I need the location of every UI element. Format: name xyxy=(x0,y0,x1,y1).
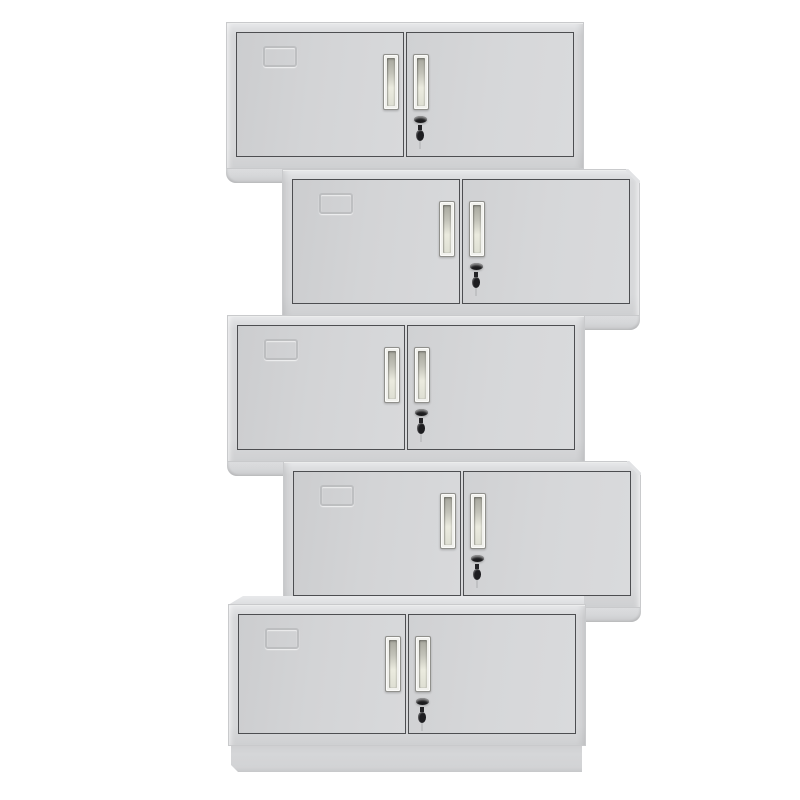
handle-recess xyxy=(419,640,427,688)
door-lock xyxy=(413,116,427,150)
right-door-handle xyxy=(414,347,430,403)
key-bow xyxy=(416,130,424,141)
door-lock xyxy=(415,698,429,732)
handle-recess xyxy=(473,205,481,253)
right-door-handle xyxy=(415,636,431,692)
right-door-handle xyxy=(470,493,486,549)
left-door xyxy=(236,32,404,157)
key-bow xyxy=(472,277,480,288)
handle-recess xyxy=(389,640,397,688)
key-bow xyxy=(417,423,425,434)
cabinet-body xyxy=(283,461,641,608)
cabinet-body xyxy=(226,22,584,169)
cabinet-5 xyxy=(228,604,586,746)
key-tail xyxy=(419,141,421,149)
left-door xyxy=(238,614,406,734)
left-door-handle xyxy=(383,54,399,110)
right-door xyxy=(463,471,631,596)
left-door-handle xyxy=(440,493,456,549)
stacked-cabinets-product-photo xyxy=(0,0,800,800)
right-door-handle xyxy=(413,54,429,110)
lock-cylinder-icon xyxy=(471,555,484,562)
handle-recess xyxy=(387,58,395,106)
door-lock xyxy=(469,263,483,297)
label-card-holder xyxy=(264,339,298,360)
cabinet-1 xyxy=(226,22,584,169)
cabinet-2 xyxy=(282,169,640,316)
lock-cylinder-icon xyxy=(415,409,428,416)
label-card-holder xyxy=(319,193,353,214)
key-tail xyxy=(421,723,423,731)
handle-recess xyxy=(474,497,482,545)
door-lock xyxy=(470,555,484,589)
left-door xyxy=(293,471,461,596)
key-bow xyxy=(418,712,426,723)
hanging-key-icon xyxy=(415,125,425,149)
hanging-key-icon xyxy=(471,272,481,296)
cabinet-3 xyxy=(227,315,585,462)
cabinet-doors xyxy=(293,471,631,596)
left-door xyxy=(237,325,405,450)
lock-cylinder-icon xyxy=(470,263,483,270)
handle-recess xyxy=(443,205,451,253)
cabinet-doors xyxy=(292,179,630,304)
cabinet-body xyxy=(228,604,586,746)
cabinet-4 xyxy=(283,461,641,608)
left-door-handle xyxy=(439,201,455,257)
left-door xyxy=(292,179,460,304)
right-door xyxy=(406,32,574,157)
cabinet-body xyxy=(227,315,585,462)
hanging-key-icon xyxy=(472,564,482,588)
cabinet-doors xyxy=(237,325,575,450)
label-card-holder xyxy=(320,485,354,506)
label-card-holder xyxy=(265,628,299,649)
hanging-key-icon xyxy=(416,418,426,442)
left-door-handle xyxy=(384,347,400,403)
right-door xyxy=(408,614,576,734)
left-door-handle xyxy=(385,636,401,692)
door-lock xyxy=(414,409,428,443)
right-door-handle xyxy=(469,201,485,257)
handle-recess xyxy=(417,58,425,106)
hanging-key-icon xyxy=(417,707,427,731)
right-door xyxy=(407,325,575,450)
cabinet-body xyxy=(282,169,640,316)
cabinet-doors xyxy=(238,614,576,734)
handle-recess xyxy=(418,351,426,399)
handle-recess xyxy=(388,351,396,399)
key-tail xyxy=(476,580,478,588)
cabinet-plinth xyxy=(231,745,582,772)
lock-cylinder-icon xyxy=(416,698,429,705)
cabinet-doors xyxy=(236,32,574,157)
label-card-holder xyxy=(263,46,297,67)
right-door xyxy=(462,179,630,304)
lock-cylinder-icon xyxy=(414,116,427,123)
handle-recess xyxy=(444,497,452,545)
key-bow xyxy=(473,569,481,580)
key-tail xyxy=(420,434,422,442)
key-tail xyxy=(475,288,477,296)
